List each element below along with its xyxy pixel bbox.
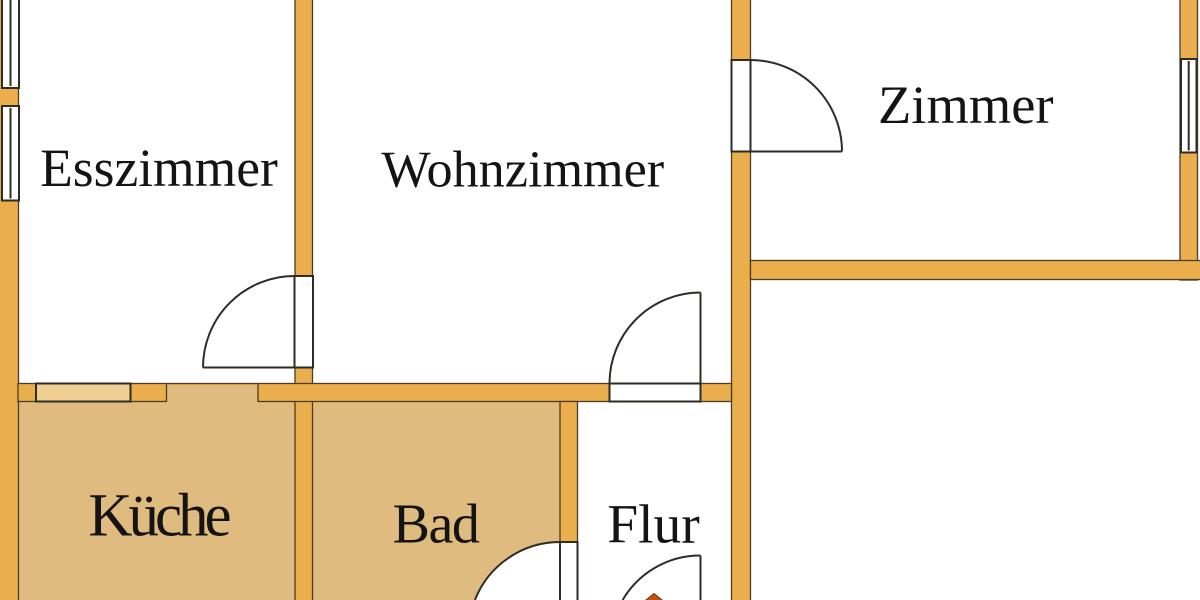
svg-text:Esszimmer: Esszimmer [40, 138, 278, 198]
svg-text:Küche: Küche [88, 483, 229, 550]
svg-text:Bad: Bad [393, 494, 480, 556]
svg-text:Zimmer: Zimmer [878, 74, 1054, 135]
svg-text:Flur: Flur [607, 495, 700, 556]
svg-text:Wohnzimmer: Wohnzimmer [381, 141, 664, 199]
